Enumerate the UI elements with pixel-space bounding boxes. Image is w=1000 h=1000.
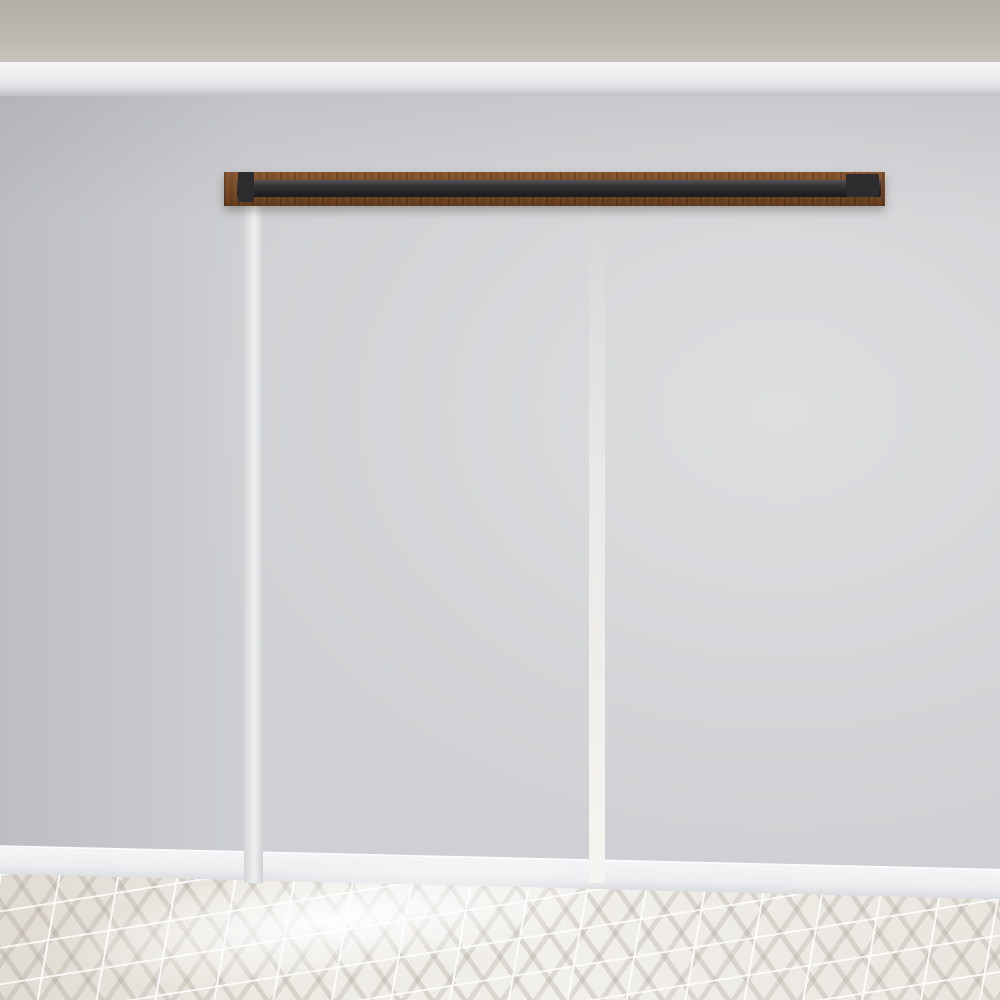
barn-door-product-image: 6.6 FT 8”clearance needed above top of d…: [0, 0, 1000, 1000]
track-end-stop-right: [846, 174, 879, 197]
track-end-stop-left: [238, 172, 254, 202]
track-rail: [237, 180, 881, 197]
ceiling: [0, 0, 1000, 68]
door-frame-trim-right: [589, 197, 605, 883]
crown-molding: [0, 62, 1000, 98]
wall: [0, 96, 1000, 880]
door-frame-trim-left: [244, 197, 263, 883]
